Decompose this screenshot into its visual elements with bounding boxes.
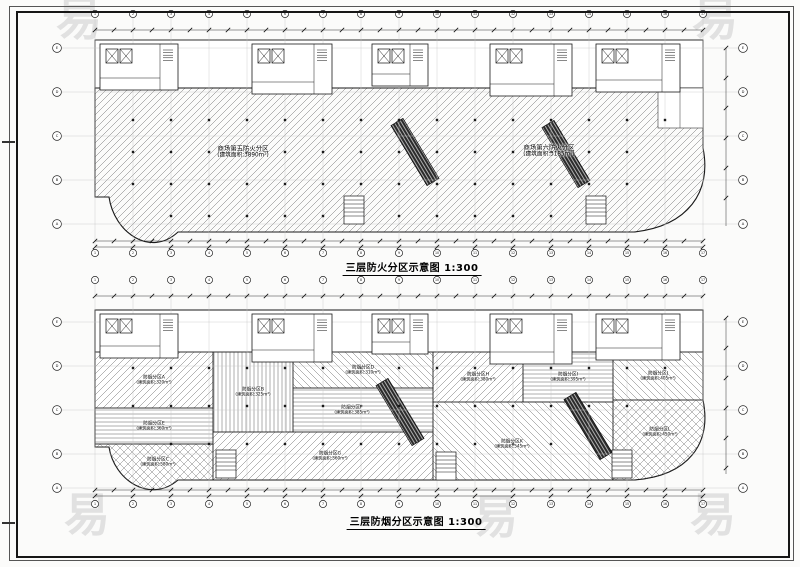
column-marker xyxy=(436,443,438,445)
core-block xyxy=(372,314,428,354)
column-marker xyxy=(474,215,476,217)
axis-bubble-label: 3 xyxy=(170,251,172,255)
column-marker xyxy=(398,405,400,407)
stair-icon xyxy=(612,450,632,478)
elevator-icon xyxy=(378,319,390,333)
column-marker xyxy=(208,215,210,217)
elevator-icon xyxy=(258,49,270,63)
smoke-zone-label: 防烟分区G(建筑面积:560m²) xyxy=(312,451,347,461)
column-marker xyxy=(626,151,628,153)
column-marker xyxy=(550,367,552,369)
column-marker xyxy=(474,119,476,121)
column-marker xyxy=(284,405,286,407)
column-marker xyxy=(246,443,248,445)
upper-plan-title: 三层防火分区示意图 1:300 xyxy=(343,259,482,276)
column-marker xyxy=(284,183,286,185)
axis-bubble-label: D xyxy=(742,364,745,368)
column-marker xyxy=(132,151,134,153)
column-marker xyxy=(360,183,362,185)
column-marker xyxy=(284,443,286,445)
smoke-zone-label: 防烟分区F(建筑面积:385m²) xyxy=(334,405,369,415)
column-marker xyxy=(398,443,400,445)
axis-bubble-label: 6 xyxy=(284,12,286,16)
core-block xyxy=(100,44,178,90)
column-marker xyxy=(246,183,248,185)
column-marker xyxy=(322,405,324,407)
column-marker xyxy=(436,405,438,407)
column-marker xyxy=(132,405,134,407)
binding-mark xyxy=(2,141,15,143)
axis-bubble-label: 16 xyxy=(663,502,667,506)
axis-bubble-label: 16 xyxy=(663,278,667,282)
elevator-icon xyxy=(378,49,390,63)
column-marker xyxy=(626,405,628,407)
axis-bubble-label: 14 xyxy=(587,278,591,282)
core-block xyxy=(252,314,332,362)
zone-area: (建筑面积:310m²) xyxy=(345,370,380,375)
axis-bubble-label: 7 xyxy=(322,12,324,16)
axis-bubble-label: 1 xyxy=(94,278,96,282)
stair-icon xyxy=(586,196,606,224)
axis-bubble-label: 17 xyxy=(701,251,705,255)
column-marker xyxy=(360,119,362,121)
axis-bubble-label: 1 xyxy=(94,251,96,255)
axis-bubble-label: 12 xyxy=(511,502,515,506)
axis-bubble-label: 17 xyxy=(701,12,705,16)
column-marker xyxy=(170,151,172,153)
axis-bubble-label: 7 xyxy=(322,251,324,255)
axis-bubble-label: 15 xyxy=(625,502,629,506)
axis-bubble-label: 2 xyxy=(132,251,134,255)
column-marker xyxy=(284,215,286,217)
smoke-zone-label: 防烟分区B(建筑面积:325m²) xyxy=(235,387,270,397)
axis-bubble-label: 10 xyxy=(435,251,439,255)
column-marker xyxy=(322,215,324,217)
column-marker xyxy=(398,183,400,185)
zone-area: (建筑面积:560m²) xyxy=(312,456,347,461)
axis-bubble-label: 8 xyxy=(360,12,362,16)
axis-bubble-label: 8 xyxy=(360,502,362,506)
axis-bubble-label: 10 xyxy=(435,502,439,506)
zone-area: (建筑面积:405m²) xyxy=(640,376,675,381)
core-block xyxy=(100,314,178,358)
axis-bubble-label: 9 xyxy=(398,251,400,255)
column-marker xyxy=(246,215,248,217)
axis-bubble-label: 16 xyxy=(663,251,667,255)
elevator-icon xyxy=(272,49,284,63)
column-marker xyxy=(170,119,172,121)
zone-area: (建筑面积:545m²) xyxy=(494,444,529,449)
axis-bubble-label: 2 xyxy=(132,502,134,506)
column-marker xyxy=(322,183,324,185)
column-marker xyxy=(588,367,590,369)
column-marker xyxy=(208,119,210,121)
axis-bubble-label: 5 xyxy=(246,12,248,16)
smoke-zone-label: 防烟分区I(建筑面积:395m²) xyxy=(550,372,585,382)
column-marker xyxy=(436,151,438,153)
column-marker xyxy=(170,443,172,445)
column-marker xyxy=(246,367,248,369)
column-marker xyxy=(170,367,172,369)
elevator-icon xyxy=(496,319,508,333)
axis-bubble-label: 4 xyxy=(208,12,210,16)
fire-compartment-label: 商场第六防火分区 (建筑面积:3185m²) xyxy=(523,144,574,159)
column-marker xyxy=(474,183,476,185)
zone-area: (建筑面积:380m²) xyxy=(460,377,495,382)
axis-bubble-label: 2 xyxy=(132,12,134,16)
column-marker xyxy=(588,151,590,153)
binding-mark xyxy=(2,522,15,524)
column-marker xyxy=(208,367,210,369)
lower-plan-title: 三层防烟分区示意图 1:300 xyxy=(347,513,486,530)
axis-bubble-label: 4 xyxy=(208,251,210,255)
cad-sheet: { "watermark": { "glyph": "易" }, "upper_… xyxy=(0,0,800,567)
axis-bubble-label: 2 xyxy=(132,278,134,282)
smoke-zone-label: 防烟分区H(建筑面积:380m²) xyxy=(460,372,495,382)
axis-bubble-label: 15 xyxy=(625,251,629,255)
zone-area: (建筑面积:360m²) xyxy=(136,426,171,431)
axis-bubble-label: 3 xyxy=(170,12,172,16)
axis-bubble-label: 5 xyxy=(246,251,248,255)
column-marker xyxy=(474,443,476,445)
smoke-zone-label: 防烟分区D(建筑面积:310m²) xyxy=(345,365,380,375)
column-marker xyxy=(512,215,514,217)
axis-bubble-label: 3 xyxy=(170,502,172,506)
core-block xyxy=(490,314,572,364)
axis-bubble-label: 7 xyxy=(322,502,324,506)
core-block xyxy=(596,314,680,360)
column-marker xyxy=(170,183,172,185)
column-marker xyxy=(208,443,210,445)
axis-bubble-label: 11 xyxy=(473,12,477,16)
elevator-icon xyxy=(496,49,508,63)
column-marker xyxy=(170,405,172,407)
axis-bubble-label: D xyxy=(742,90,745,94)
axis-bubble-label: 7 xyxy=(322,278,324,282)
core-block xyxy=(252,44,332,94)
axis-bubble-label: 10 xyxy=(435,12,439,16)
column-marker xyxy=(588,119,590,121)
stair-icon xyxy=(436,452,456,480)
column-marker xyxy=(398,367,400,369)
axis-bubble-label: 9 xyxy=(398,12,400,16)
column-marker xyxy=(132,119,134,121)
stair-icon xyxy=(216,450,236,478)
column-marker xyxy=(322,443,324,445)
column-marker xyxy=(626,183,628,185)
fire-compartment-label: 商场第五防火分区 (建筑面积:3890m²) xyxy=(217,145,268,160)
elevator-icon xyxy=(120,49,132,63)
axis-bubble-label: 11 xyxy=(473,278,477,282)
zone-area: (建筑面积:385m²) xyxy=(334,410,369,415)
axis-bubble-label: 14 xyxy=(587,12,591,16)
axis-bubble-label: 13 xyxy=(549,12,553,16)
compartment-area: (建筑面积:3890m²) xyxy=(217,153,268,160)
zone-area: (建筑面积:320m²) xyxy=(136,380,171,385)
axis-bubble-label: 12 xyxy=(511,278,515,282)
column-marker xyxy=(132,183,134,185)
column-marker xyxy=(284,367,286,369)
axis-bubble-label: 15 xyxy=(625,12,629,16)
elevator-icon xyxy=(120,319,132,333)
column-marker xyxy=(512,119,514,121)
column-marker xyxy=(322,151,324,153)
column-marker xyxy=(512,183,514,185)
column-marker xyxy=(246,119,248,121)
column-marker xyxy=(436,367,438,369)
axis-bubble-label: 17 xyxy=(701,502,705,506)
axis-bubble-label: 9 xyxy=(398,278,400,282)
column-marker xyxy=(550,405,552,407)
axis-bubble-label: 14 xyxy=(587,251,591,255)
axis-bubble-label: 11 xyxy=(473,251,477,255)
elevator-icon xyxy=(510,49,522,63)
core-block xyxy=(596,44,680,92)
column-marker xyxy=(474,405,476,407)
axis-bubble-label: 1 xyxy=(94,12,96,16)
elevator-icon xyxy=(616,319,628,333)
axis-bubble-label: 12 xyxy=(511,251,515,255)
column-marker xyxy=(322,367,324,369)
axis-bubble-label: 6 xyxy=(284,251,286,255)
column-marker xyxy=(208,151,210,153)
upper-corner-rooms xyxy=(658,88,703,128)
column-marker xyxy=(626,367,628,369)
column-marker xyxy=(284,151,286,153)
elevator-icon xyxy=(602,49,614,63)
axis-bubble-label: 13 xyxy=(549,278,553,282)
column-marker xyxy=(436,119,438,121)
axis-bubble-label: 8 xyxy=(360,251,362,255)
elevator-icon xyxy=(272,319,284,333)
axis-bubble-label: 14 xyxy=(587,502,591,506)
axis-bubble-label: 16 xyxy=(663,12,667,16)
core-block xyxy=(490,44,572,96)
column-marker xyxy=(398,151,400,153)
column-marker xyxy=(664,367,666,369)
elevator-icon xyxy=(602,319,614,333)
column-marker xyxy=(550,183,552,185)
elevator-icon xyxy=(106,319,118,333)
axis-bubble-label: 6 xyxy=(284,502,286,506)
axis-bubble-label: 9 xyxy=(398,502,400,506)
smoke-zone-label: 防烟分区K(建筑面积:545m²) xyxy=(494,439,529,449)
axis-bubble-label: 5 xyxy=(246,278,248,282)
elevator-icon xyxy=(392,319,404,333)
axis-bubble-label: 13 xyxy=(549,502,553,506)
smoke-zone-label: 防烟分区C(建筑面积:580m²) xyxy=(140,457,175,467)
column-marker xyxy=(398,215,400,217)
zone-area: (建筑面积:580m²) xyxy=(140,462,175,467)
column-marker xyxy=(170,215,172,217)
column-marker xyxy=(664,119,666,121)
column-marker xyxy=(436,183,438,185)
column-marker xyxy=(360,151,362,153)
stair-icon xyxy=(344,196,364,224)
axis-bubble-label: 11 xyxy=(473,502,477,506)
upper-main-hatch xyxy=(95,88,705,243)
column-marker xyxy=(208,183,210,185)
elevator-icon xyxy=(510,319,522,333)
column-marker xyxy=(512,367,514,369)
axis-bubble-label: 3 xyxy=(170,278,172,282)
compartment-area: (建筑面积:3185m²) xyxy=(523,152,574,159)
column-marker xyxy=(550,119,552,121)
axis-bubble-label: 1 xyxy=(94,502,96,506)
axis-bubble-label: 4 xyxy=(208,278,210,282)
column-marker xyxy=(436,215,438,217)
axis-bubble-label: 12 xyxy=(511,12,515,16)
column-marker xyxy=(246,405,248,407)
axis-bubble-label: 4 xyxy=(208,502,210,506)
zone-area: (建筑面积:395m²) xyxy=(550,377,585,382)
smoke-zone-label: 防烟分区E(建筑面积:360m²) xyxy=(136,421,171,431)
axis-bubble-label: 10 xyxy=(435,278,439,282)
column-marker xyxy=(132,367,134,369)
core-block xyxy=(372,44,428,86)
axis-bubble-label: 5 xyxy=(246,502,248,506)
column-marker xyxy=(550,443,552,445)
column-marker xyxy=(512,405,514,407)
column-marker xyxy=(284,119,286,121)
elevator-icon xyxy=(106,49,118,63)
smoke-zone-label: 防烟分区L(建筑面积:450m²) xyxy=(642,427,677,437)
axis-bubble-label: 6 xyxy=(284,278,286,282)
zone-area: (建筑面积:325m²) xyxy=(235,392,270,397)
column-marker xyxy=(550,215,552,217)
compartment-name: 商场第六防火分区 xyxy=(523,144,574,152)
column-marker xyxy=(360,443,362,445)
axis-bubble-label: 15 xyxy=(625,278,629,282)
column-marker xyxy=(626,119,628,121)
column-marker xyxy=(398,119,400,121)
column-marker xyxy=(474,367,476,369)
column-marker xyxy=(588,183,590,185)
axis-bubble-label: D xyxy=(56,90,59,94)
compartment-name: 商场第五防火分区 xyxy=(217,145,268,153)
smoke-zone-label: 防烟分区A(建筑面积:320m²) xyxy=(136,375,171,385)
axis-bubble-label: 17 xyxy=(701,278,705,282)
smoke-zone-label: 防烟分区J(建筑面积:405m²) xyxy=(640,371,675,381)
column-marker xyxy=(474,151,476,153)
axis-bubble-label: 13 xyxy=(549,251,553,255)
zone-area: (建筑面积:450m²) xyxy=(642,432,677,437)
elevator-icon xyxy=(392,49,404,63)
cad-linework: 1122334455667788991010111112121313141415… xyxy=(0,0,800,567)
elevator-icon xyxy=(258,319,270,333)
column-marker xyxy=(588,405,590,407)
axis-bubble-label: 8 xyxy=(360,278,362,282)
elevator-icon xyxy=(616,49,628,63)
column-marker xyxy=(208,405,210,407)
column-marker xyxy=(512,151,514,153)
column-marker xyxy=(322,119,324,121)
axis-bubble-label: D xyxy=(56,364,59,368)
